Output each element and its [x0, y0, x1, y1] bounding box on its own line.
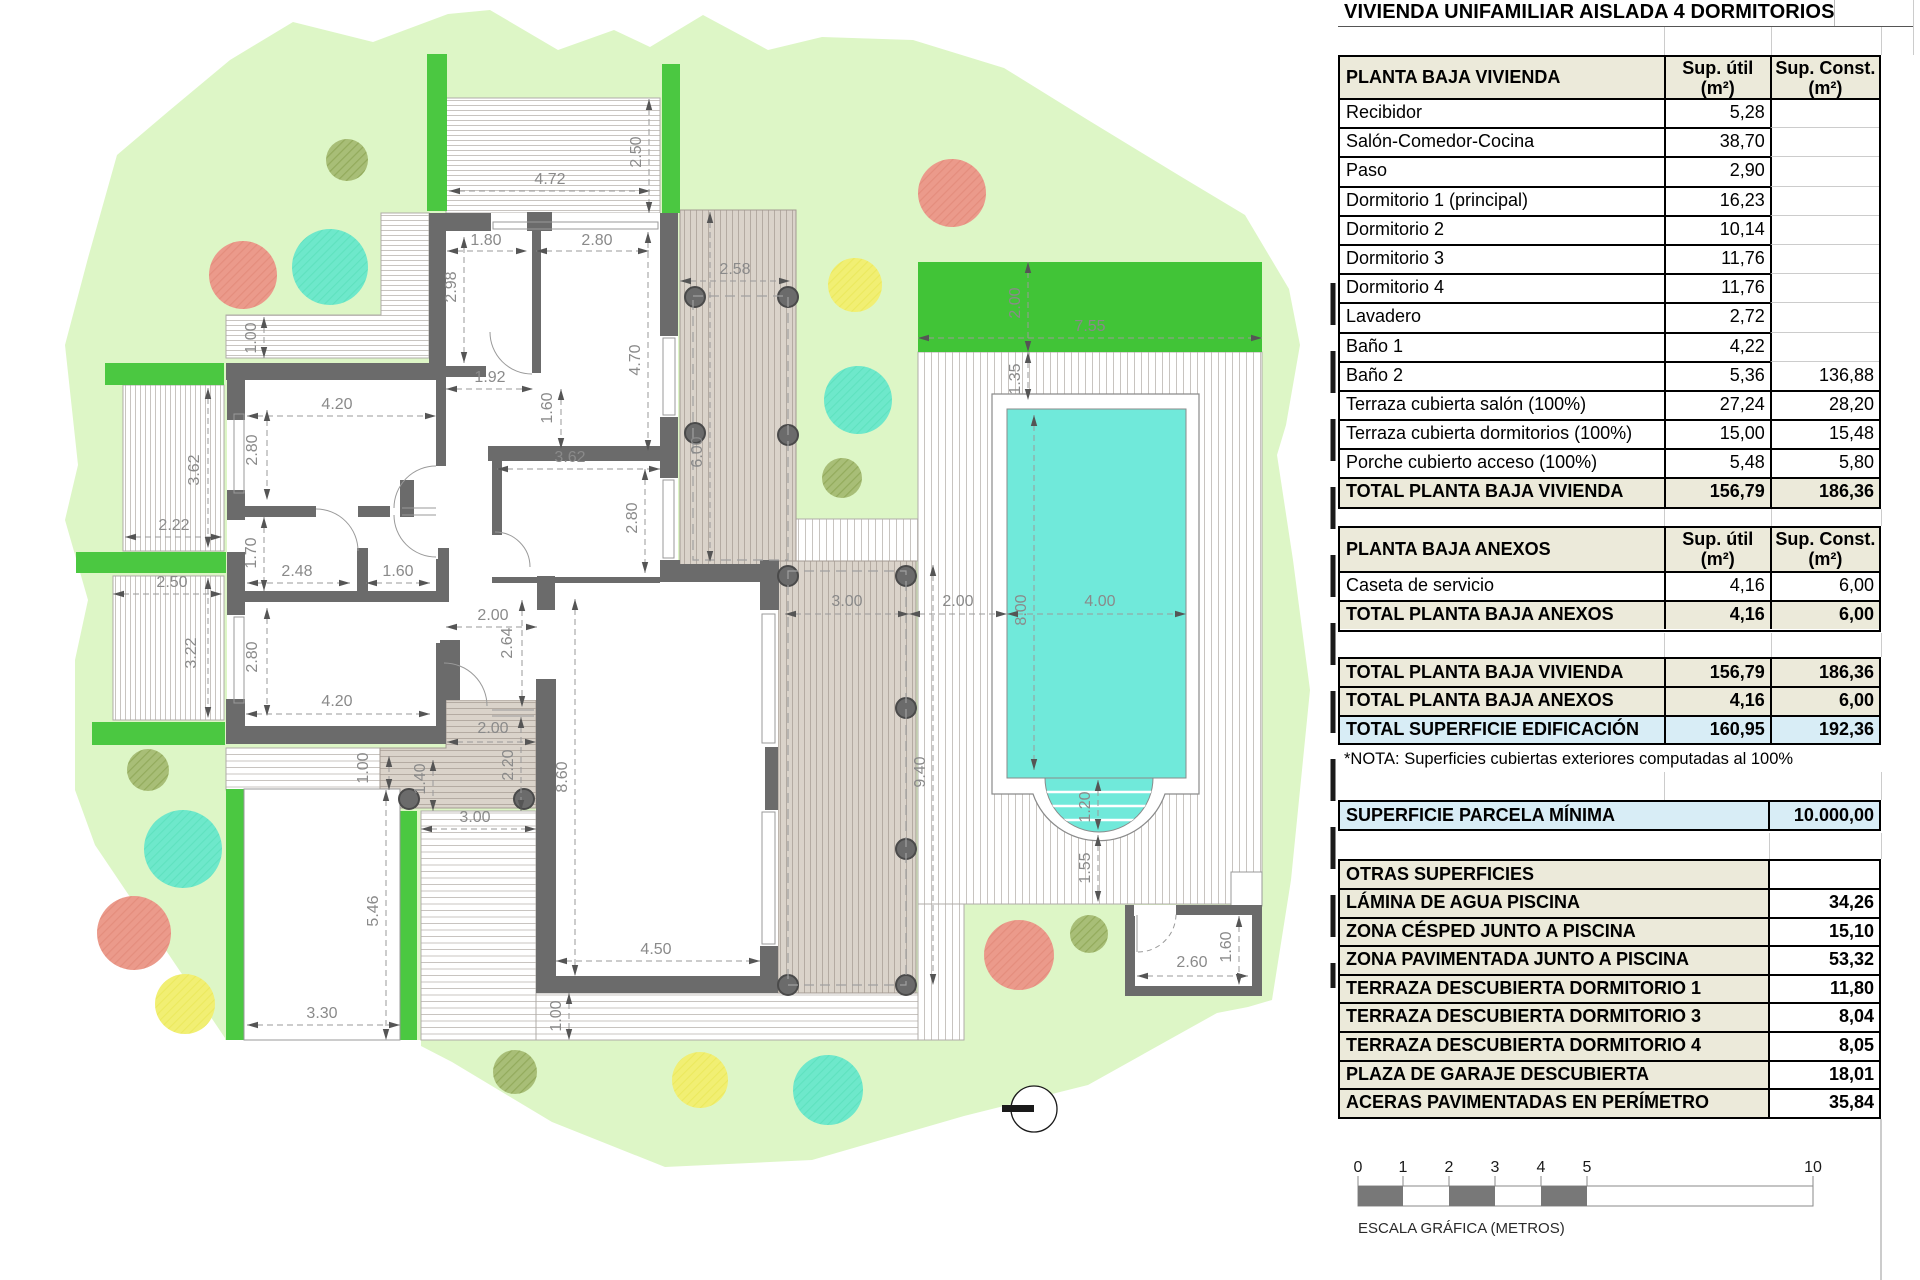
svg-text:2.80: 2.80: [581, 232, 612, 249]
svg-text:5.46: 5.46: [365, 895, 382, 926]
svg-text:2.00: 2.00: [477, 720, 508, 737]
svg-text:1.20: 1.20: [1077, 791, 1094, 822]
svg-text:3.00: 3.00: [459, 809, 490, 826]
svg-text:1.40: 1.40: [412, 763, 429, 794]
svg-text:3.62: 3.62: [186, 454, 203, 485]
svg-text:1.60: 1.60: [539, 392, 556, 423]
svg-text:ESCALA GRÁFICA (METROS): ESCALA GRÁFICA (METROS): [1358, 1220, 1565, 1237]
svg-text:1: 1: [1399, 1159, 1408, 1176]
svg-text:8.60: 8.60: [554, 761, 571, 792]
svg-text:4.50: 4.50: [640, 941, 671, 958]
svg-text:2.48: 2.48: [281, 563, 312, 580]
svg-text:1.35: 1.35: [1007, 363, 1024, 394]
svg-text:2.00: 2.00: [942, 593, 973, 610]
svg-text:1.00: 1.00: [355, 752, 372, 783]
svg-text:4: 4: [1537, 1159, 1546, 1176]
svg-text:1.55: 1.55: [1077, 852, 1094, 883]
svg-text:1.00: 1.00: [243, 322, 260, 353]
svg-text:4.72: 4.72: [534, 171, 565, 188]
svg-text:2.00: 2.00: [477, 607, 508, 624]
svg-text:9.40: 9.40: [912, 756, 929, 787]
svg-text:0: 0: [1354, 1159, 1363, 1176]
svg-text:2.22: 2.22: [158, 517, 189, 534]
svg-text:1.80: 1.80: [470, 232, 501, 249]
svg-text:2.20: 2.20: [500, 749, 517, 780]
svg-text:2.60: 2.60: [1176, 954, 1207, 971]
svg-text:8.00: 8.00: [1013, 594, 1030, 625]
svg-text:6.00: 6.00: [689, 436, 706, 467]
svg-text:7.55: 7.55: [1074, 318, 1105, 335]
svg-text:2: 2: [1445, 1159, 1454, 1176]
svg-text:2.64: 2.64: [499, 627, 516, 658]
svg-text:2.80: 2.80: [244, 641, 261, 672]
svg-text:3.62: 3.62: [554, 449, 585, 466]
svg-text:3.30: 3.30: [306, 1005, 337, 1022]
svg-text:3.22: 3.22: [183, 637, 200, 668]
svg-text:1.70: 1.70: [243, 537, 260, 568]
svg-text:5: 5: [1583, 1159, 1592, 1176]
svg-text:1.00: 1.00: [548, 1000, 565, 1031]
svg-text:4.00: 4.00: [1084, 593, 1115, 610]
svg-text:1.60: 1.60: [382, 563, 413, 580]
svg-text:2.00: 2.00: [1007, 287, 1024, 318]
svg-text:4.20: 4.20: [321, 396, 352, 413]
svg-text:10: 10: [1804, 1159, 1822, 1176]
svg-text:2.50: 2.50: [628, 136, 645, 167]
svg-text:3: 3: [1491, 1159, 1500, 1176]
svg-text:3.00: 3.00: [831, 593, 862, 610]
svg-text:2.98: 2.98: [443, 271, 460, 302]
svg-text:4.20: 4.20: [321, 693, 352, 710]
svg-text:1.60: 1.60: [1218, 931, 1235, 962]
svg-text:2.80: 2.80: [624, 502, 641, 533]
svg-text:1.92: 1.92: [474, 369, 505, 386]
svg-text:2.80: 2.80: [244, 434, 261, 465]
svg-text:2.58: 2.58: [719, 261, 750, 278]
svg-text:4.70: 4.70: [627, 344, 644, 375]
svg-text:2.50: 2.50: [156, 574, 187, 591]
